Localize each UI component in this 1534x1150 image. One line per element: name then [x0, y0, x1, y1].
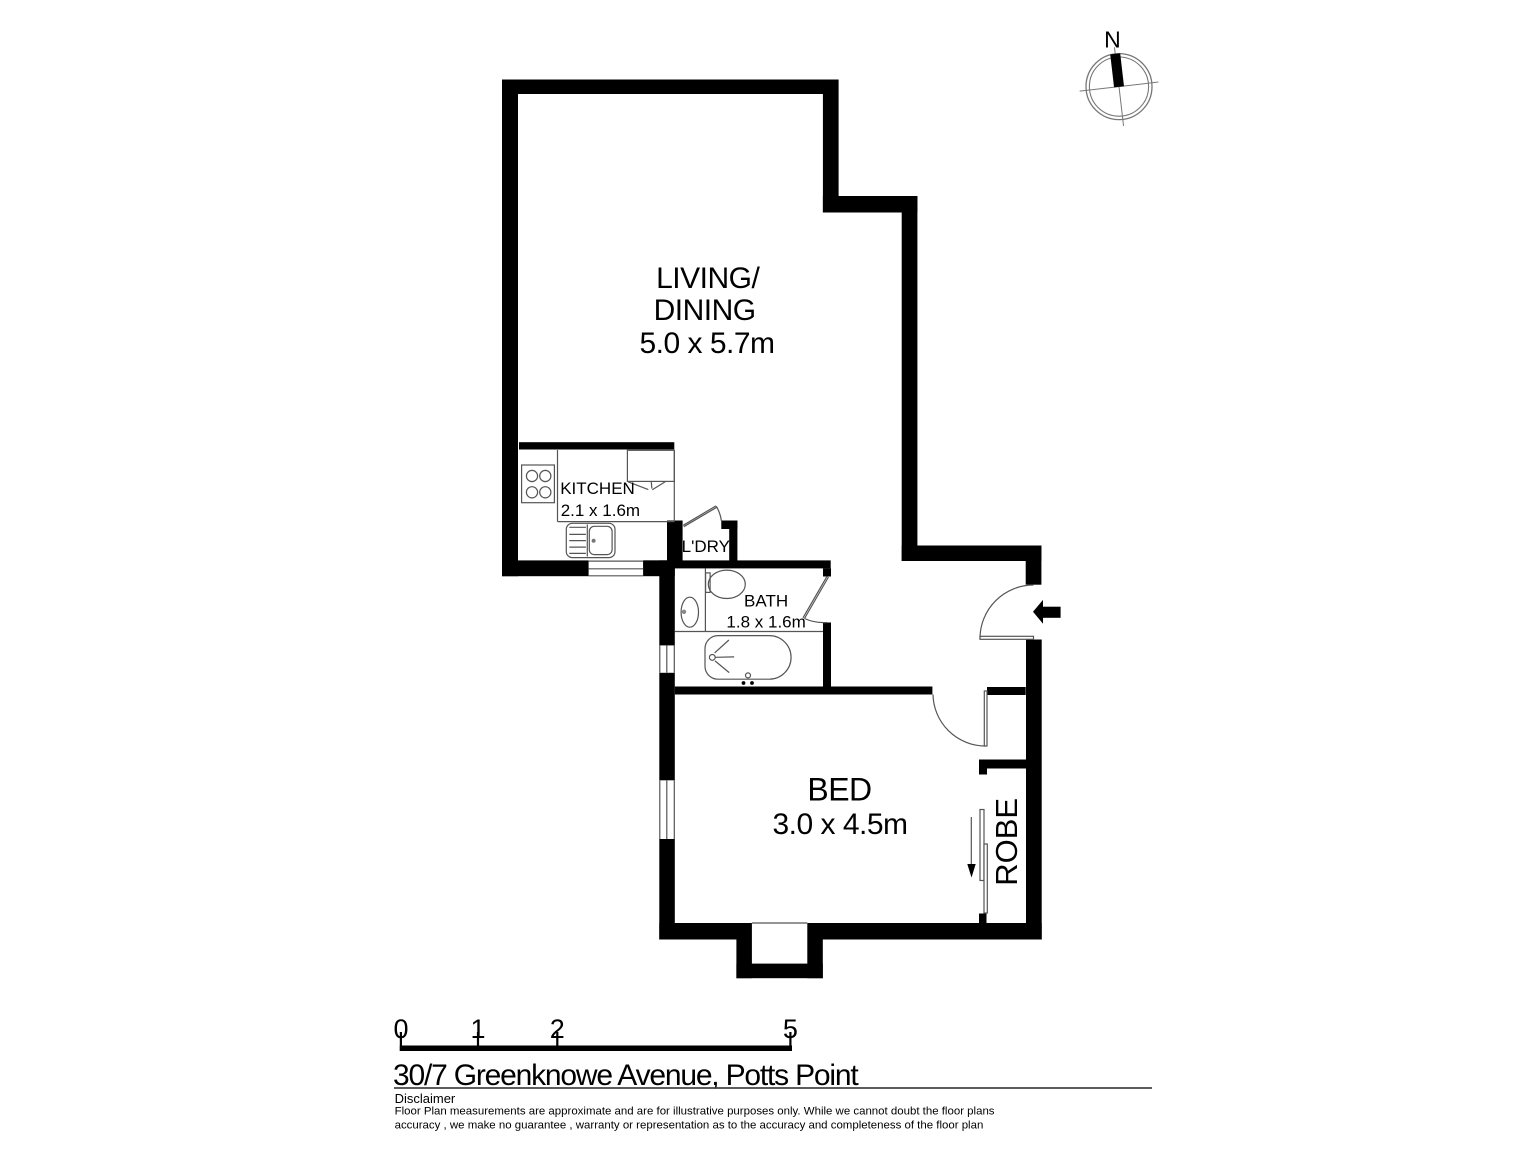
svg-text:2: 2: [550, 1014, 565, 1044]
svg-text:L'DRY: L'DRY: [682, 537, 730, 556]
svg-text:1.8 x 1.6m: 1.8 x 1.6m: [726, 612, 805, 631]
svg-text:1: 1: [470, 1014, 485, 1044]
svg-text:5: 5: [783, 1014, 798, 1044]
svg-text:BATH: BATH: [744, 592, 788, 611]
svg-text:LIVING/: LIVING/: [656, 262, 760, 295]
svg-text:5.0 x 5.7m: 5.0 x 5.7m: [639, 327, 774, 360]
svg-text:BED: BED: [807, 772, 871, 808]
svg-text:DINING: DINING: [654, 294, 756, 327]
svg-text:0: 0: [393, 1014, 408, 1044]
svg-text:ROBE: ROBE: [989, 798, 1024, 886]
svg-text:Disclaimer: Disclaimer: [395, 1091, 456, 1106]
svg-text:N: N: [1104, 26, 1121, 52]
svg-text:30/7 Greenknowe Avenue, Potts: 30/7 Greenknowe Avenue, Potts Point: [393, 1059, 859, 1092]
svg-text:2.1 x 1.6m: 2.1 x 1.6m: [561, 501, 640, 520]
svg-text:3.0 x 4.5m: 3.0 x 4.5m: [772, 808, 907, 841]
svg-text:accuracy , we make no guarante: accuracy , we make no guarantee , warran…: [395, 1120, 984, 1132]
svg-text:KITCHEN: KITCHEN: [560, 479, 635, 498]
svg-text:Floor Plan measurements are ap: Floor Plan measurements are approximate …: [395, 1106, 995, 1118]
